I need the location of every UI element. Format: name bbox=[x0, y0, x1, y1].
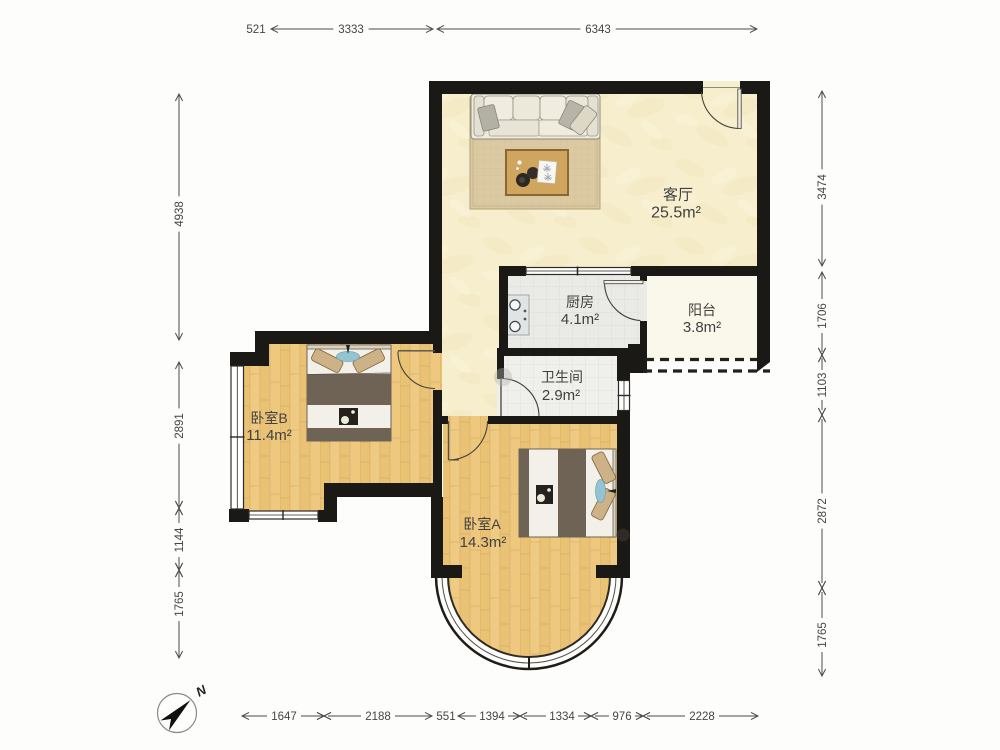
svg-text:551: 551 bbox=[436, 711, 455, 723]
svg-text:2872: 2872 bbox=[817, 498, 829, 524]
svg-text:卧室A: 卧室A bbox=[463, 516, 501, 532]
svg-text:976: 976 bbox=[612, 711, 631, 723]
svg-text:1103: 1103 bbox=[817, 373, 829, 398]
svg-text:6343: 6343 bbox=[585, 24, 611, 36]
svg-text:客厅: 客厅 bbox=[663, 187, 693, 204]
svg-text:2891: 2891 bbox=[174, 413, 186, 439]
svg-text:14.3m²: 14.3m² bbox=[460, 534, 507, 551]
svg-text:25.5m²: 25.5m² bbox=[651, 205, 701, 222]
svg-text:1706: 1706 bbox=[817, 303, 829, 329]
svg-text:4.1m²: 4.1m² bbox=[561, 311, 599, 328]
svg-text:1765: 1765 bbox=[817, 622, 829, 648]
svg-text:卧室B: 卧室B bbox=[250, 410, 287, 426]
svg-text:阳台: 阳台 bbox=[688, 302, 716, 318]
svg-text:2228: 2228 bbox=[689, 711, 715, 723]
svg-text:2188: 2188 bbox=[365, 711, 391, 723]
svg-text:521: 521 bbox=[246, 24, 265, 36]
svg-text:3.8m²: 3.8m² bbox=[683, 319, 721, 336]
svg-text:1334: 1334 bbox=[549, 711, 575, 723]
svg-text:1394: 1394 bbox=[479, 711, 505, 723]
svg-text:3474: 3474 bbox=[817, 174, 829, 200]
svg-text:1647: 1647 bbox=[271, 711, 297, 723]
svg-text:卫生间: 卫生间 bbox=[541, 369, 583, 385]
svg-text:1144: 1144 bbox=[174, 527, 186, 552]
svg-text:4938: 4938 bbox=[174, 201, 186, 227]
svg-text:3333: 3333 bbox=[338, 24, 364, 36]
svg-text:2.9m²: 2.9m² bbox=[542, 387, 580, 404]
svg-text:11.4m²: 11.4m² bbox=[246, 427, 292, 444]
svg-text:1765: 1765 bbox=[174, 591, 186, 617]
svg-text:厨房: 厨房 bbox=[566, 294, 594, 310]
